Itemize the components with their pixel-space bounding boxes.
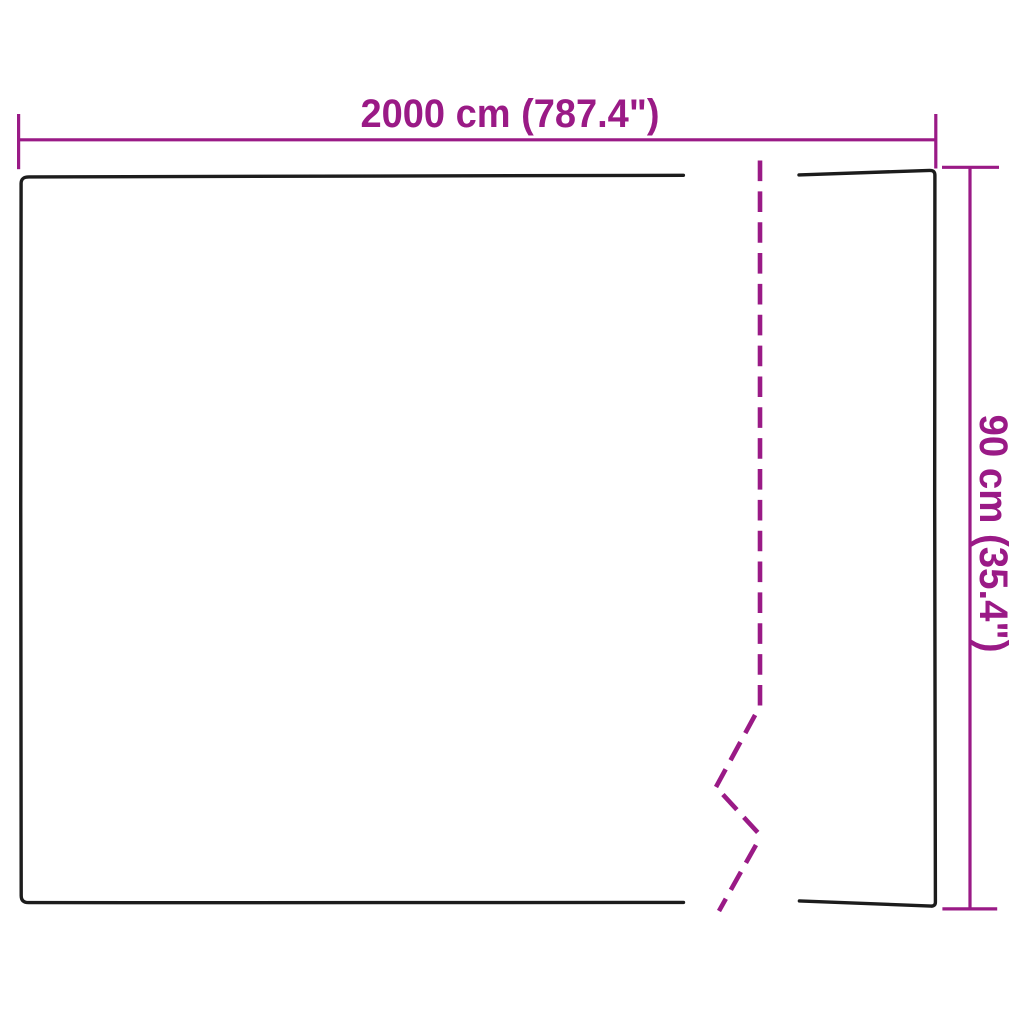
svg-text:90 cm (35.4"): 90 cm (35.4")	[971, 415, 1015, 653]
svg-text:2000 cm (787.4"): 2000 cm (787.4")	[361, 92, 660, 136]
